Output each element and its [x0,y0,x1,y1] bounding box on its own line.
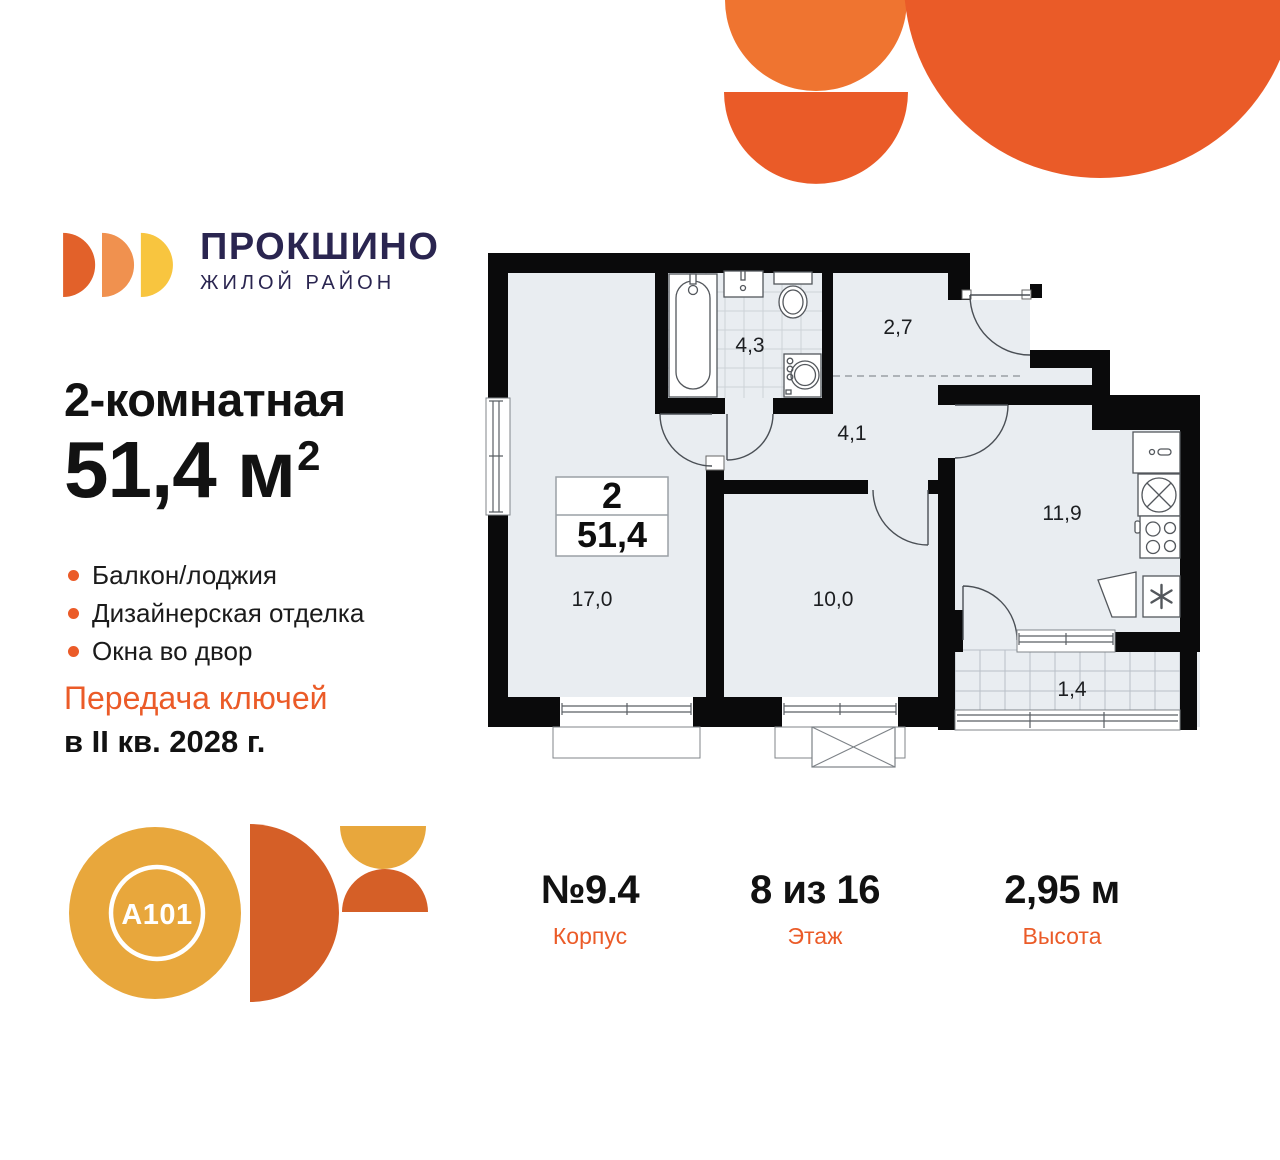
developer-logo: A101 [40,810,460,1040]
kitchen-unit [1138,474,1180,516]
door-jamb [706,456,724,470]
washing-machine [784,354,821,397]
deco-circles-top-right [680,0,1280,200]
room-label-bathroom: 4,3 [735,334,764,357]
developer-bowl [340,826,426,869]
room-label-hall: 2,7 [883,316,912,339]
deco-bowl-dark [724,92,908,184]
deco-big-circle [904,0,1280,178]
area-value: 51,4 м [64,425,295,514]
ac-basket [812,727,895,767]
window-sill [553,727,700,758]
feature-item: Балкон/лоджия [64,556,364,594]
feature-list: Балкон/лоджия Дизайнерская отделка Окна … [64,556,364,670]
brand-logo: ПРОКШИНО ЖИЛОЙ РАЙОН [58,228,439,298]
stat-building-label: Корпус [470,923,710,950]
feature-item: Дизайнерская отделка [64,594,364,632]
listing-area: 51,4 м2 [64,428,319,512]
bathtub [669,274,717,397]
developer-logo-text: A101 [121,899,192,931]
area-sup: 2 [297,432,319,479]
developer-dome [342,869,428,912]
bathroom-sink [724,271,763,297]
room-label-kitchen: 11,9 [1042,502,1081,525]
stat-height: 2,95 м Высота [942,868,1182,950]
stove [1135,516,1180,558]
kitchen-sink [1133,432,1180,473]
handover-line-1: Передача ключей [64,680,327,717]
stat-building: №9.4 Корпус [470,868,710,950]
stat-height-value: 2,95 м [942,868,1182,913]
room-label-bedroom: 10,0 [813,588,854,611]
plan-rooms-count: 2 [602,475,622,516]
deco-bowl-light [725,0,907,91]
room-label-living: 17,0 [572,588,613,611]
stat-floor: 8 из 16 Этаж [695,868,935,950]
room-label-balcony: 1,4 [1057,678,1087,701]
brand-discs-icon [58,228,180,298]
room-label-corridor: 4,1 [837,422,866,445]
brand-name: ПРОКШИНО [200,228,439,266]
stat-building-value: №9.4 [470,868,710,913]
developer-halfdisc [250,824,339,1002]
feature-item: Окна во двор [64,632,364,670]
brand-tagline: ЖИЛОЙ РАЙОН [200,272,439,295]
balcony-glazing [955,710,1180,730]
stat-floor-value: 8 из 16 [695,868,935,913]
stat-height-label: Высота [942,923,1182,950]
plan-total-area: 51,4 [577,514,647,555]
stat-floor-label: Этаж [695,923,935,950]
listing-title: 2-комнатная [64,372,346,427]
plan-info-box: 2 51,4 [556,475,668,556]
outside-corner [1105,240,1200,395]
handover-line-2: в II кв. 2028 г. [64,724,265,760]
floor-plan: 2 51,4 17,0 10,0 11,9 4,3 2,7 4,1 1,4 [480,240,1200,780]
